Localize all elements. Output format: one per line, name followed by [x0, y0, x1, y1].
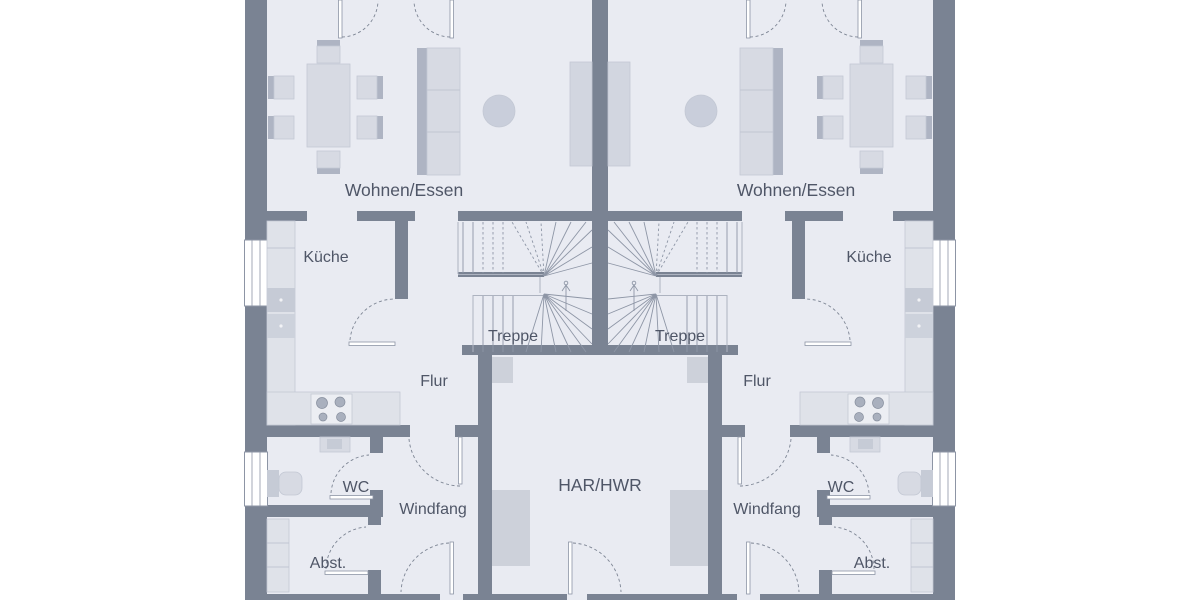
floor-plan-page: Wohnen/Essen Wohnen/Essen Küche Küche Tr…	[0, 0, 1200, 600]
room-label-vestibule-right: Windfang	[733, 501, 801, 518]
floor-plan-canvas: Wohnen/Essen Wohnen/Essen Küche Küche Tr…	[0, 0, 1200, 600]
room-label-stairs-right: Treppe	[655, 328, 705, 345]
room-label-kitchen-left: Küche	[303, 249, 348, 266]
room-label-wc-left: WC	[343, 479, 370, 496]
room-label-utility: HAR/HWR	[558, 475, 642, 495]
room-label-vestibule-left: Windfang	[399, 501, 467, 518]
room-label-storage-left: Abst.	[310, 555, 346, 572]
room-label-hall-right: Flur	[743, 373, 771, 390]
room-label-living-left: Wohnen/Essen	[345, 180, 463, 200]
room-label-stairs-left: Treppe	[488, 328, 538, 345]
room-label-wc-right: WC	[828, 479, 855, 496]
room-label-kitchen-right: Küche	[846, 249, 891, 266]
room-label-hall-left: Flur	[420, 373, 448, 390]
utility-door-leaf	[569, 542, 573, 594]
room-label-storage-right: Abst.	[854, 555, 890, 572]
room-label-living-right: Wohnen/Essen	[737, 180, 855, 200]
